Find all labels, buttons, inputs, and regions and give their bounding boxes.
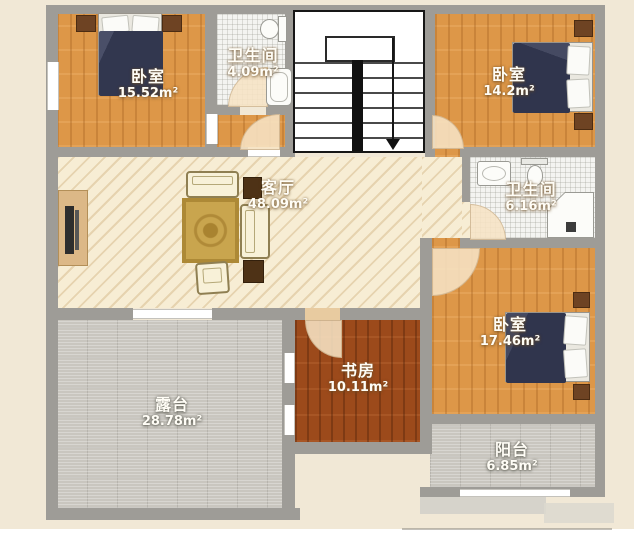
- toilet-icon: [260, 19, 279, 39]
- room-label-terrace: 露台 28.78m²: [117, 395, 227, 430]
- room-label-living: 客厅 48.09m²: [223, 178, 333, 213]
- room-name: 卧室: [93, 67, 203, 86]
- room-label-bathroom-top: 卫生间 4.09m²: [198, 46, 308, 81]
- pillow: [566, 78, 590, 108]
- window-bedroomtl-left: [47, 62, 59, 110]
- wall-bedroomtr-bottom-b: [460, 147, 605, 157]
- nightstand: [574, 20, 593, 37]
- door-gap-bedroomtl: [206, 114, 218, 144]
- floorplan-page: { "plan": { "type": "residential-floor-p…: [0, 0, 640, 537]
- armchair-seat: [202, 267, 222, 283]
- shower-drain: [566, 222, 576, 232]
- sofa-back-line: [245, 210, 255, 253]
- wall-living-bottom-a: [46, 308, 133, 320]
- stair-down-arrow-icon: [386, 139, 400, 150]
- threshold-living-vestibule: [248, 149, 280, 157]
- room-name: 客厅: [223, 178, 333, 197]
- tv-icon-panel: [75, 210, 79, 250]
- room-area: 14.2m²: [454, 84, 564, 100]
- wall-terrace-bottom: [46, 508, 300, 520]
- room-label-bedroom-top-right: 卧室 14.2m²: [454, 65, 564, 100]
- toilet-tank: [521, 158, 548, 165]
- photo-smudge: [544, 503, 614, 523]
- window-study-left-b: [284, 405, 295, 435]
- armchair: [195, 261, 230, 295]
- wall-living-bottom-c: [340, 308, 432, 320]
- photo-edge-line: [402, 528, 612, 530]
- room-area: 10.11m²: [303, 380, 413, 396]
- window-balcony-bottom: [460, 489, 570, 497]
- wall-living-top-left: [46, 147, 248, 157]
- room-area: 48.09m²: [223, 197, 333, 213]
- room-label-balcony: 阳台 6.85m²: [457, 440, 567, 475]
- room-name: 卫生间: [476, 180, 586, 199]
- window-study-left-a: [284, 353, 295, 383]
- room-name: 卧室: [454, 65, 564, 84]
- sink-basin: [482, 166, 506, 181]
- wall-study-bottom: [282, 442, 432, 454]
- room-label-study: 书房 10.11m²: [303, 361, 413, 396]
- doorway-bedroom-bottom-right: [432, 238, 460, 248]
- wall-bathright-left: [462, 157, 470, 202]
- toilet-tank: [278, 16, 287, 42]
- balcony-exterior-step: [420, 497, 546, 514]
- pillow: [563, 315, 588, 346]
- stair-center-rail: [352, 60, 363, 151]
- doorway-study: [305, 308, 340, 320]
- room-area: 4.09m²: [198, 65, 308, 81]
- nightstand: [574, 113, 593, 130]
- pillow: [563, 348, 588, 379]
- stair-upper-flight: [325, 36, 395, 62]
- room-label-bedroom-top-left: 卧室 15.52m²: [93, 67, 203, 102]
- pillow: [566, 45, 590, 75]
- room-name: 露台: [117, 395, 227, 414]
- nightstand: [76, 15, 96, 32]
- room-label-bathroom-right: 卫生间 6.16m²: [476, 180, 586, 215]
- tv-icon: [65, 206, 74, 254]
- room-area: 28.78m²: [117, 414, 227, 430]
- room-name: 卧室: [455, 315, 565, 334]
- room-area: 17.46m²: [455, 334, 565, 350]
- nightstand: [162, 15, 182, 32]
- doorway-bathroom-right: [462, 202, 470, 238]
- nightstand: [573, 384, 590, 400]
- room-name: 阳台: [457, 440, 567, 459]
- nightstand: [573, 292, 590, 308]
- staircase: [293, 10, 425, 153]
- window-living-terrace: [133, 309, 212, 319]
- room-area: 15.52m²: [93, 86, 203, 102]
- room-area: 6.16m²: [476, 199, 586, 215]
- wall-bedroombr-balcony: [420, 414, 605, 424]
- stair-direction-line: [392, 38, 394, 140]
- room-area: 6.85m²: [457, 459, 567, 475]
- side-table: [243, 260, 264, 283]
- room-living-extension: [422, 157, 462, 238]
- room-name: 书房: [303, 361, 413, 380]
- room-name: 卫生间: [198, 46, 308, 65]
- room-label-bedroom-bottom-right: 卧室 17.46m²: [455, 315, 565, 350]
